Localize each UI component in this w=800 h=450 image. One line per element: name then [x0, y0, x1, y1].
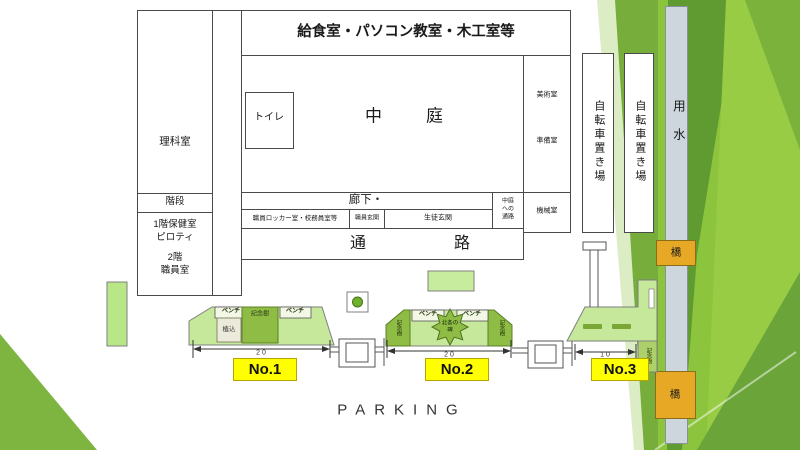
student-entrance-label: 生徒玄関 [424, 215, 452, 224]
site-shapes [0, 0, 800, 450]
parking3-dash-1 [583, 324, 602, 329]
bridge-1-label: 橋 [671, 246, 682, 259]
bicycle-shed-2-label: 自転車置き場 [632, 100, 646, 184]
water-channel-label: 用水 [669, 100, 685, 157]
gate-2-inner [535, 345, 556, 363]
toilet-label: トイレ [254, 112, 284, 125]
section-badge-3: No.3 [591, 358, 649, 381]
wing-label-2: ピロティ [156, 232, 193, 244]
hedge-center [428, 271, 474, 291]
machine-room-label: 機械室 [537, 208, 558, 217]
courtyard-label: 中庭 [365, 105, 487, 126]
corridor-label: 廊下・ [349, 193, 384, 207]
bench-4-label: ベンチ [463, 311, 481, 319]
wing-label-1: 1階保健室 [153, 219, 196, 231]
courtyard-passage-label-2: への [502, 206, 514, 214]
dim3-arrow-left [575, 349, 583, 355]
stairs-label: 階段 [165, 196, 184, 208]
slide-canvas: 給食室・パソコン教室・木工室等 理科室 階段 1階保健室 ピロティ 2階 職員室… [0, 0, 800, 450]
memorial-tree-2r-label: 記念樹 [498, 320, 505, 337]
tree-icon [353, 297, 363, 307]
memorial-tree-2l-label: 記念樹 [395, 320, 402, 337]
bench-3-label: ベンチ [419, 311, 437, 319]
science-room-label: 理科室 [159, 135, 191, 148]
art-room-label: 美術室 [537, 92, 558, 101]
monument-label-1: 北条の [442, 321, 459, 328]
prep-room-label: 準備室 [537, 138, 558, 147]
dim2-arrow-right [503, 348, 511, 354]
parking3-dash-2 [612, 324, 631, 329]
monument-label-2: 碑 [447, 328, 453, 335]
bridge-2-label: 橋 [670, 388, 681, 401]
north-building-label: 給食室・パソコン教室・木工室等 [297, 23, 515, 41]
section-badge-3-label: No.3 [604, 361, 637, 378]
dim1-arrow-left [193, 346, 201, 352]
wing-label-4: 職員室 [161, 265, 190, 277]
memorial-tree-1-label: 記念樹 [251, 311, 269, 319]
section-badge-2: No.2 [425, 358, 489, 381]
section-badge-2-label: No.2 [441, 361, 474, 378]
bench-2-label: ベンチ [286, 308, 304, 316]
courtyard-passage-label-1: 中庭 [502, 198, 514, 206]
pole-crossbar [583, 242, 606, 250]
section-badge-1: No.1 [233, 358, 297, 381]
wing-label-3: 2階 [168, 252, 183, 264]
staff-locker-label: 職員ロッカー室・校務員室等 [253, 215, 338, 223]
shrub-label: 植込 [223, 326, 236, 334]
parking-area-3 [567, 280, 657, 341]
staff-entrance-label: 職員玄関 [355, 215, 379, 223]
dim2-arrow-left [387, 348, 395, 354]
hedge-west [107, 282, 127, 346]
dim3-arrow-right [628, 349, 636, 355]
section-badge-1-label: No.1 [249, 361, 282, 378]
passage-label: 通路 [350, 234, 558, 254]
bicycle-shed-1-label: 自転車置き場 [591, 100, 605, 184]
parking-title: PARKING [337, 402, 466, 421]
courtyard-passage-label-3: 通路 [502, 214, 514, 222]
dim1-arrow-right [322, 346, 330, 352]
bench-1-label: ベンチ [222, 308, 240, 316]
parking3-slot-mark [649, 289, 654, 308]
gate-1-inner [346, 343, 368, 362]
